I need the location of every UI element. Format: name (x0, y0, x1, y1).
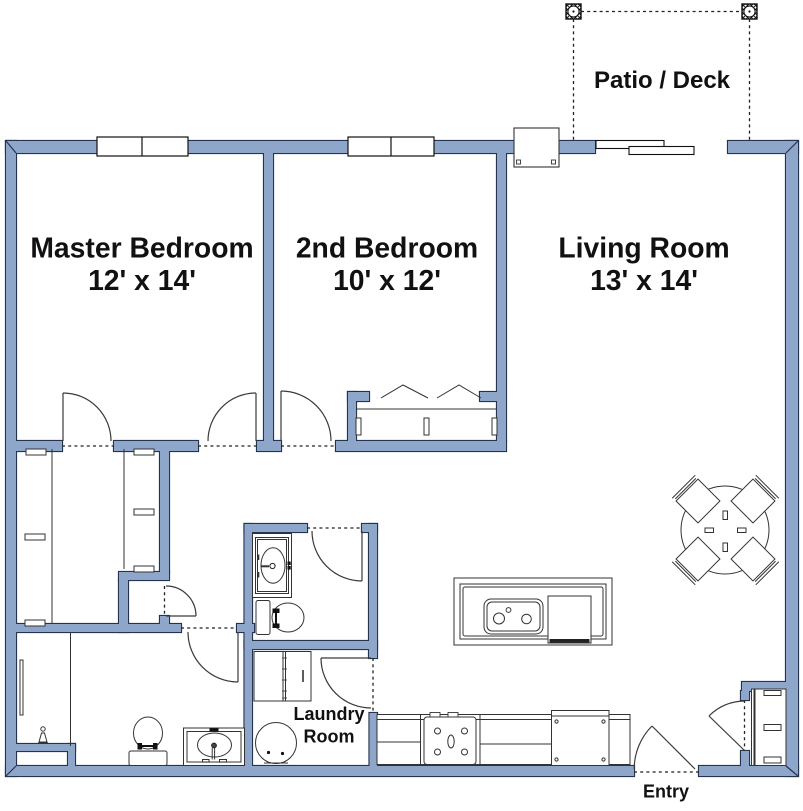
svg-text:Patio / Deck: Patio / Deck (594, 67, 731, 94)
svg-text:10' x 12': 10' x 12' (333, 264, 441, 296)
svg-text:2nd Bedroom: 2nd Bedroom (296, 232, 478, 264)
svg-text:12' x 14': 12' x 14' (88, 264, 196, 296)
svg-text:Room: Room (304, 727, 355, 747)
svg-text:Master Bedroom: Master Bedroom (30, 232, 253, 264)
svg-text:Living Room: Living Room (558, 232, 729, 264)
svg-text:13' x 14': 13' x 14' (590, 264, 698, 296)
svg-text:Laundry: Laundry (293, 704, 364, 724)
svg-text:Entry: Entry (643, 782, 689, 802)
